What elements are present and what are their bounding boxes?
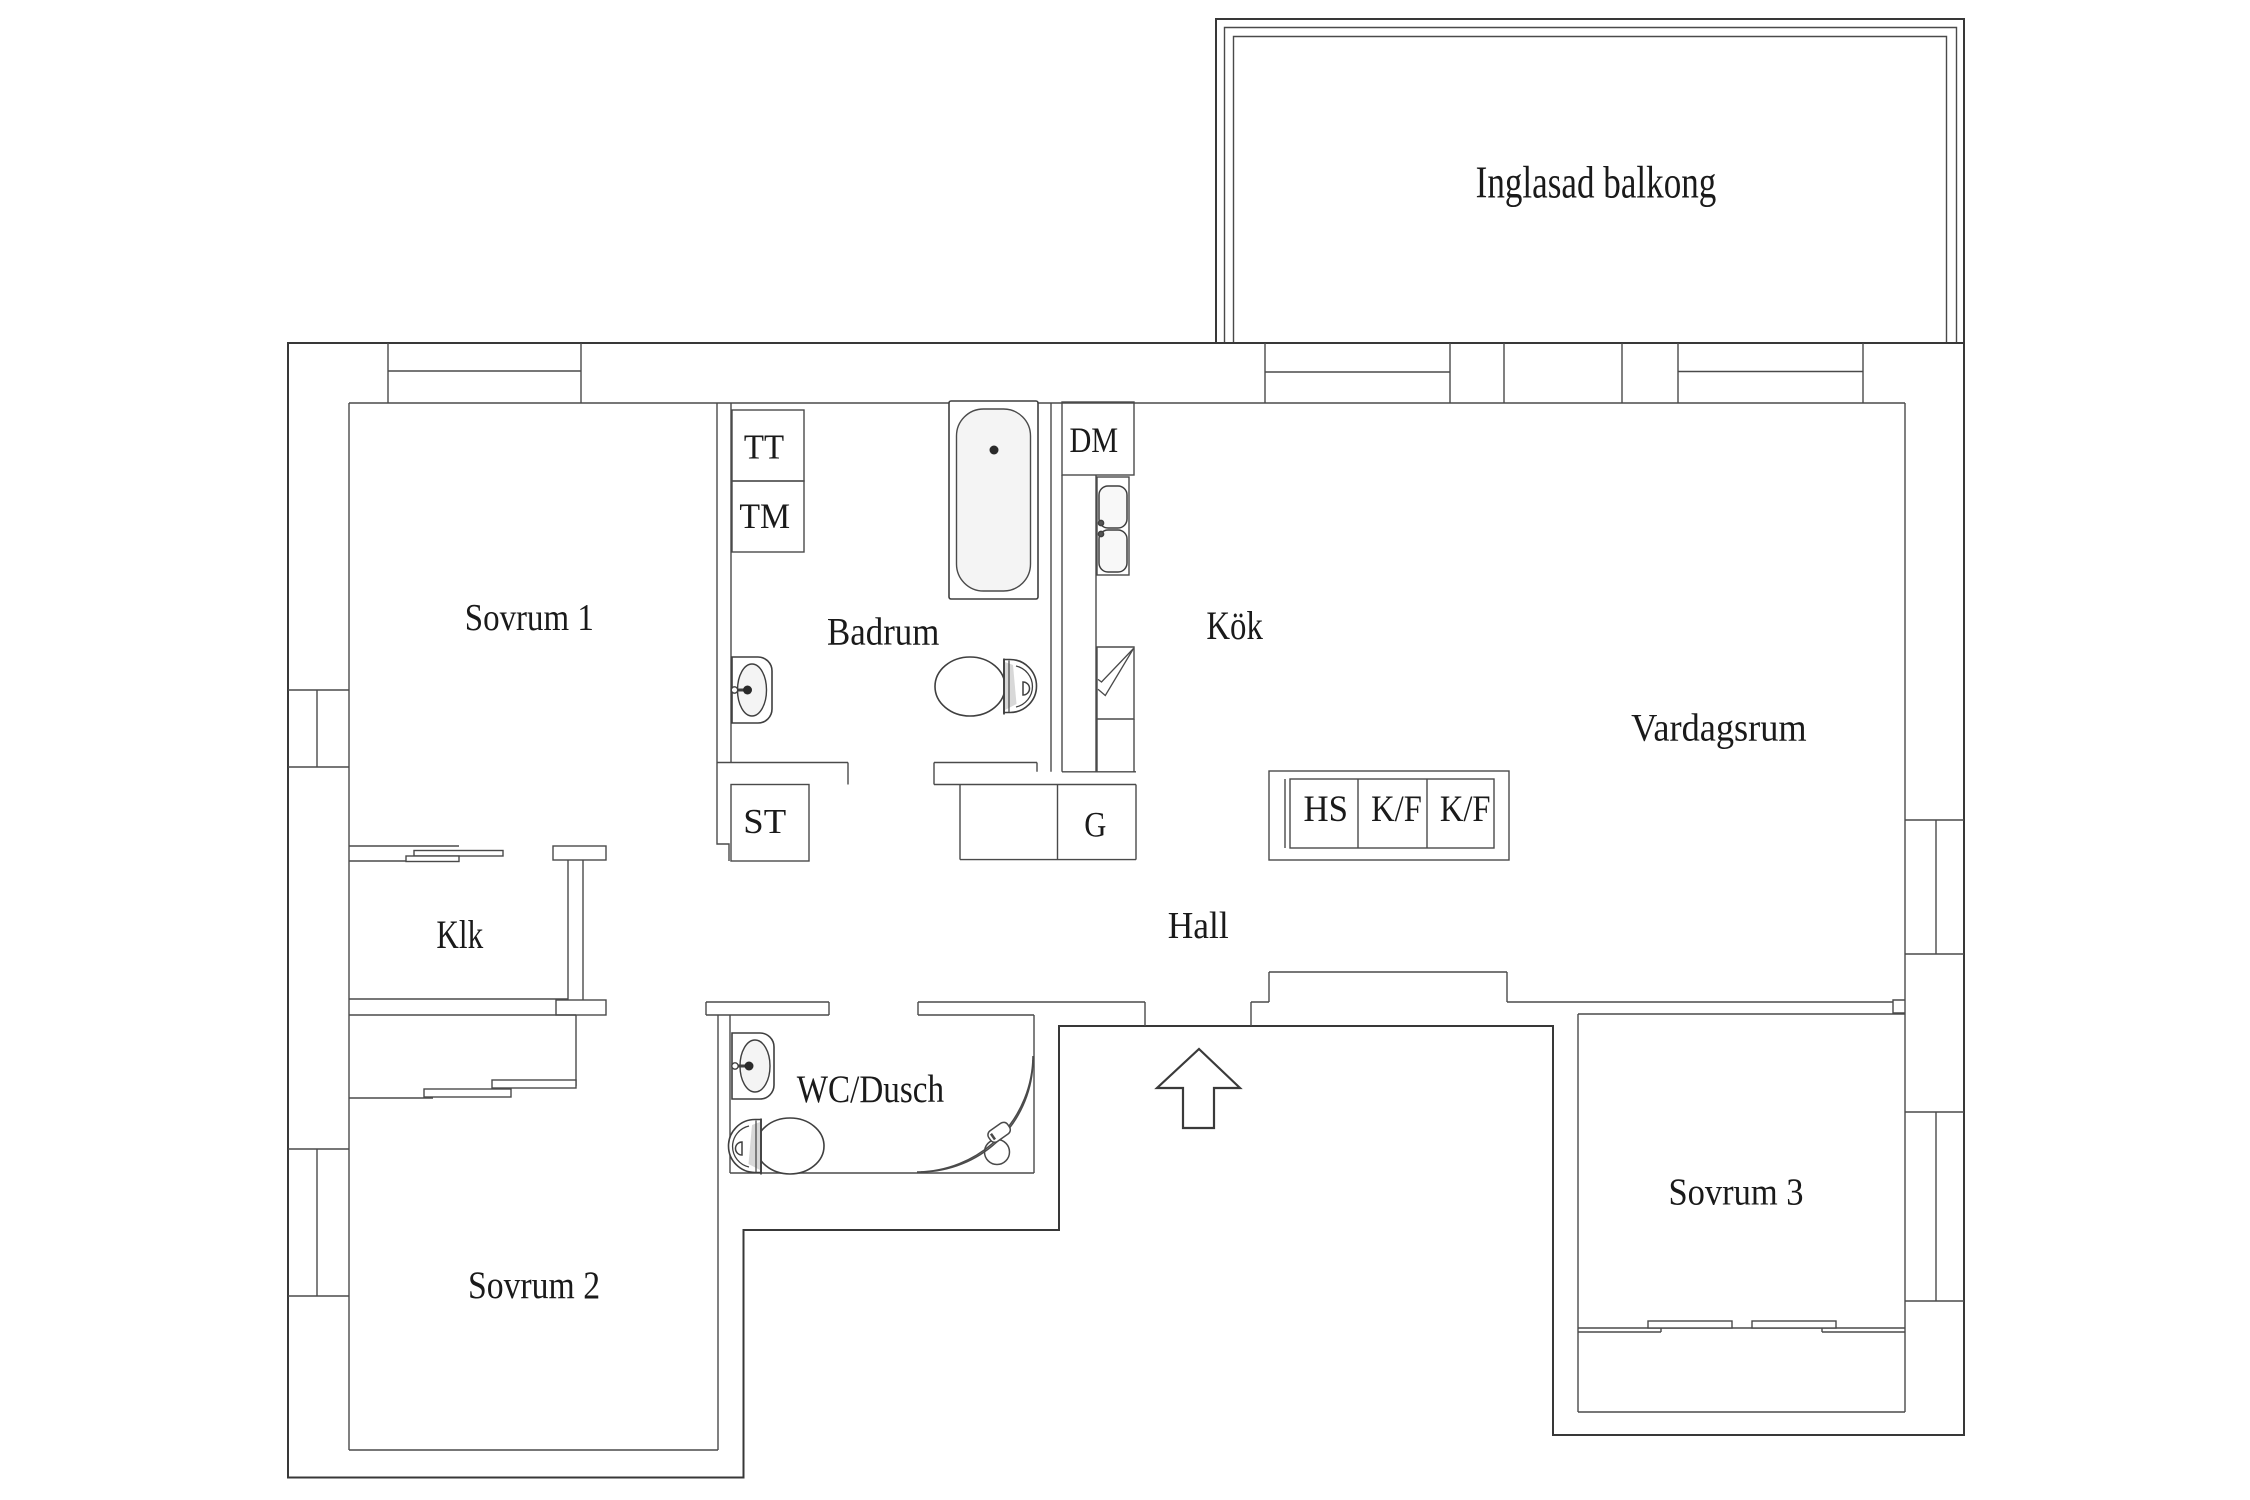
svg-text:Klk: Klk bbox=[436, 912, 483, 957]
svg-text:Sovrum 3: Sovrum 3 bbox=[1668, 1171, 1803, 1213]
svg-text:ST: ST bbox=[743, 802, 786, 841]
svg-text:Badrum: Badrum bbox=[827, 611, 940, 654]
svg-text:Inglasad balkong: Inglasad balkong bbox=[1476, 157, 1717, 207]
svg-text:G: G bbox=[1084, 805, 1106, 845]
svg-text:Vardagsrum: Vardagsrum bbox=[1631, 706, 1807, 750]
svg-text:Sovrum 1: Sovrum 1 bbox=[465, 596, 594, 639]
svg-text:Sovrum 2: Sovrum 2 bbox=[468, 1264, 600, 1307]
svg-text:K/F: K/F bbox=[1440, 788, 1491, 829]
svg-text:HS: HS bbox=[1303, 788, 1347, 829]
svg-text:K/F: K/F bbox=[1371, 788, 1422, 829]
svg-text:TM: TM bbox=[739, 496, 790, 536]
svg-text:DM: DM bbox=[1069, 421, 1118, 461]
svg-text:WC/Dusch: WC/Dusch bbox=[797, 1068, 944, 1111]
svg-text:TT: TT bbox=[744, 429, 784, 467]
svg-text:Hall: Hall bbox=[1168, 904, 1229, 946]
svg-text:Kök: Kök bbox=[1206, 603, 1263, 648]
